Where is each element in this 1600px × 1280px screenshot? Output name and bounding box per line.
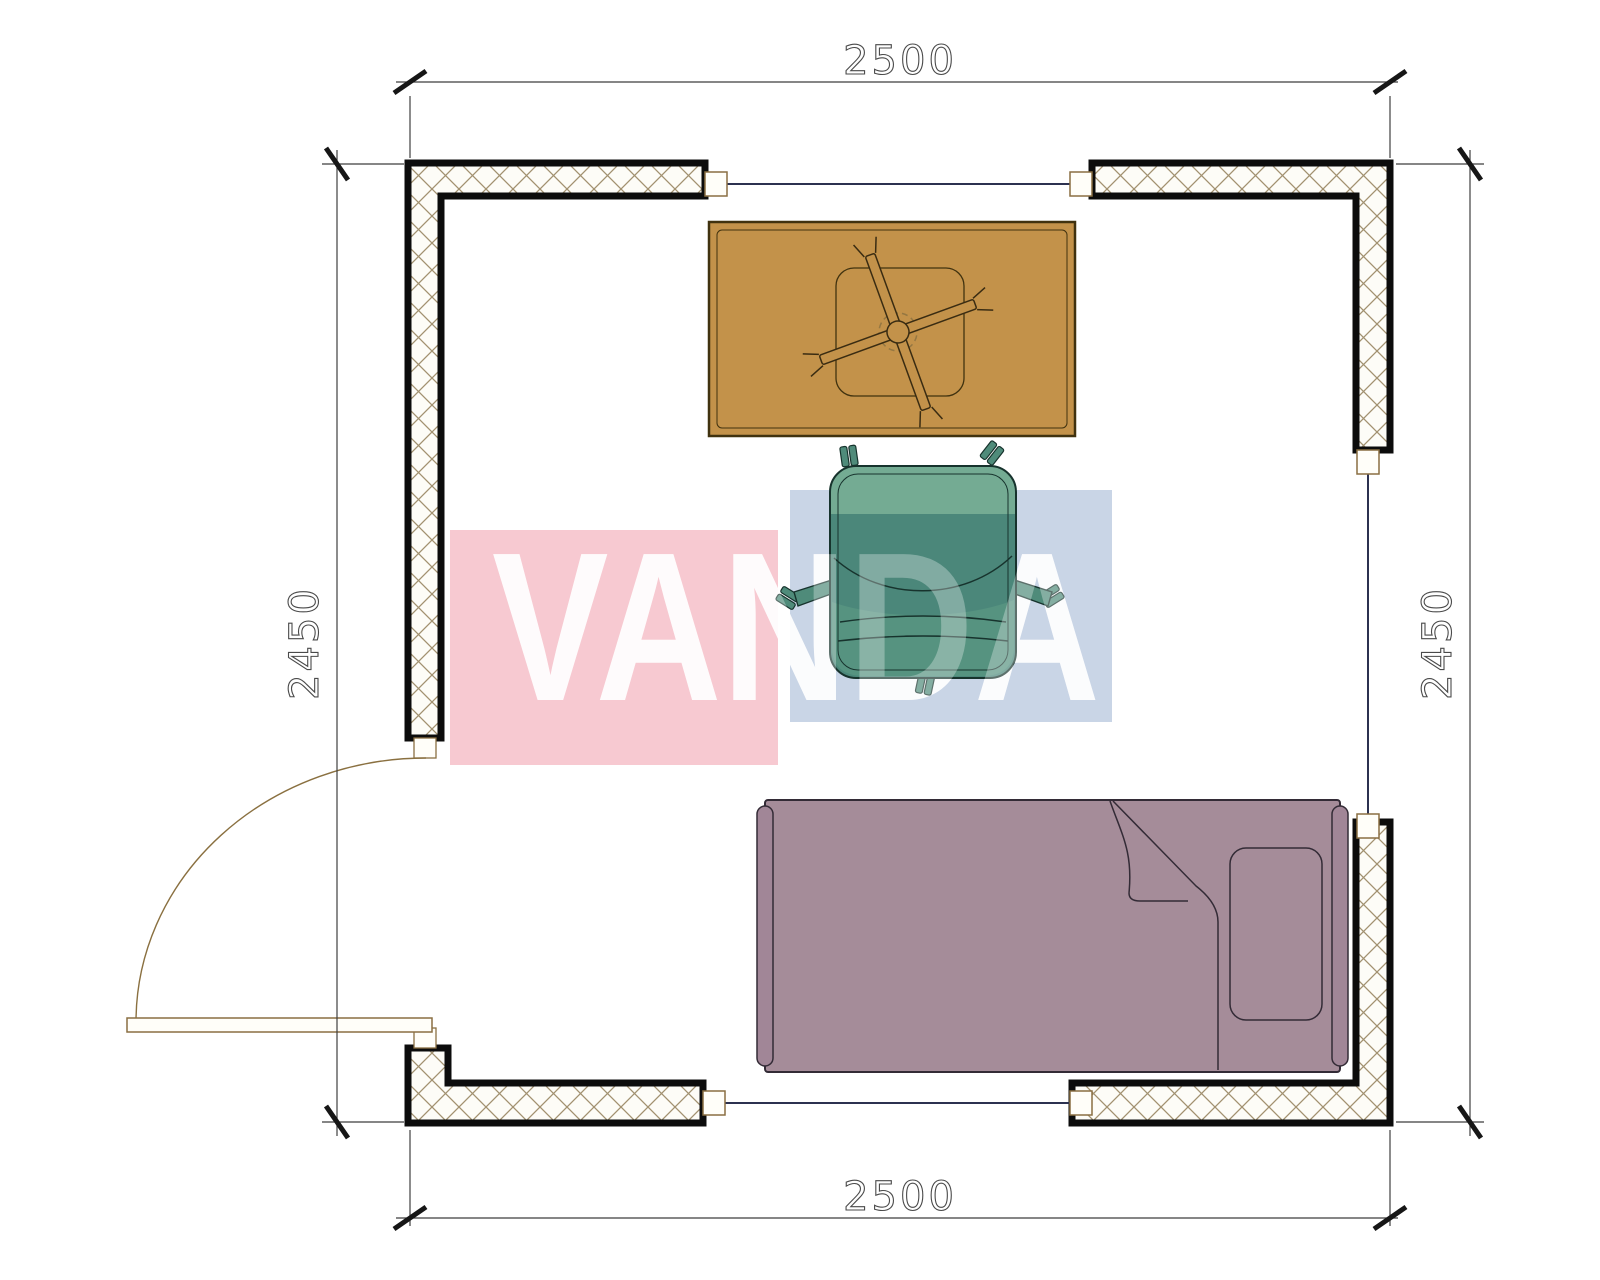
dimension-label-right: 2450: [1415, 586, 1461, 700]
door-swing-arc: [136, 758, 426, 1022]
door-leaf: [127, 1018, 432, 1032]
window-frame-block: [1070, 172, 1092, 196]
dimension-left: [322, 148, 404, 1138]
bed-headboard: [1332, 806, 1348, 1066]
floor-plan-drawing: VANDA: [0, 0, 1600, 1280]
dimension-label-left: 2450: [282, 586, 328, 700]
door-jamb-block: [414, 738, 436, 758]
bed-footboard: [757, 806, 773, 1066]
watermark-text-over: VANDA: [492, 508, 1100, 745]
window-frame-block: [703, 1091, 725, 1115]
dimension-label-top: 2500: [843, 38, 957, 84]
window-frame-block: [1357, 450, 1379, 474]
extension-line: [322, 164, 404, 1122]
desk: [709, 208, 1075, 457]
chair-caster: [980, 440, 1005, 466]
wall-top-right-and-right-upper: [1092, 163, 1390, 450]
extension-line: [410, 96, 1390, 158]
dimension-label-bottom: 2500: [843, 1174, 957, 1220]
bed-pillow: [1230, 848, 1322, 1020]
floor-plan-canvas: VANDA: [0, 0, 1600, 1280]
dimension-top: [394, 71, 1406, 158]
window-frame-block: [1357, 814, 1379, 838]
bed: [757, 800, 1348, 1072]
chair-caster: [840, 445, 859, 467]
window-frame-block: [705, 172, 727, 196]
wall-bottom-left: [408, 1048, 703, 1123]
door: [127, 738, 436, 1048]
window-frame-block: [1070, 1091, 1092, 1115]
